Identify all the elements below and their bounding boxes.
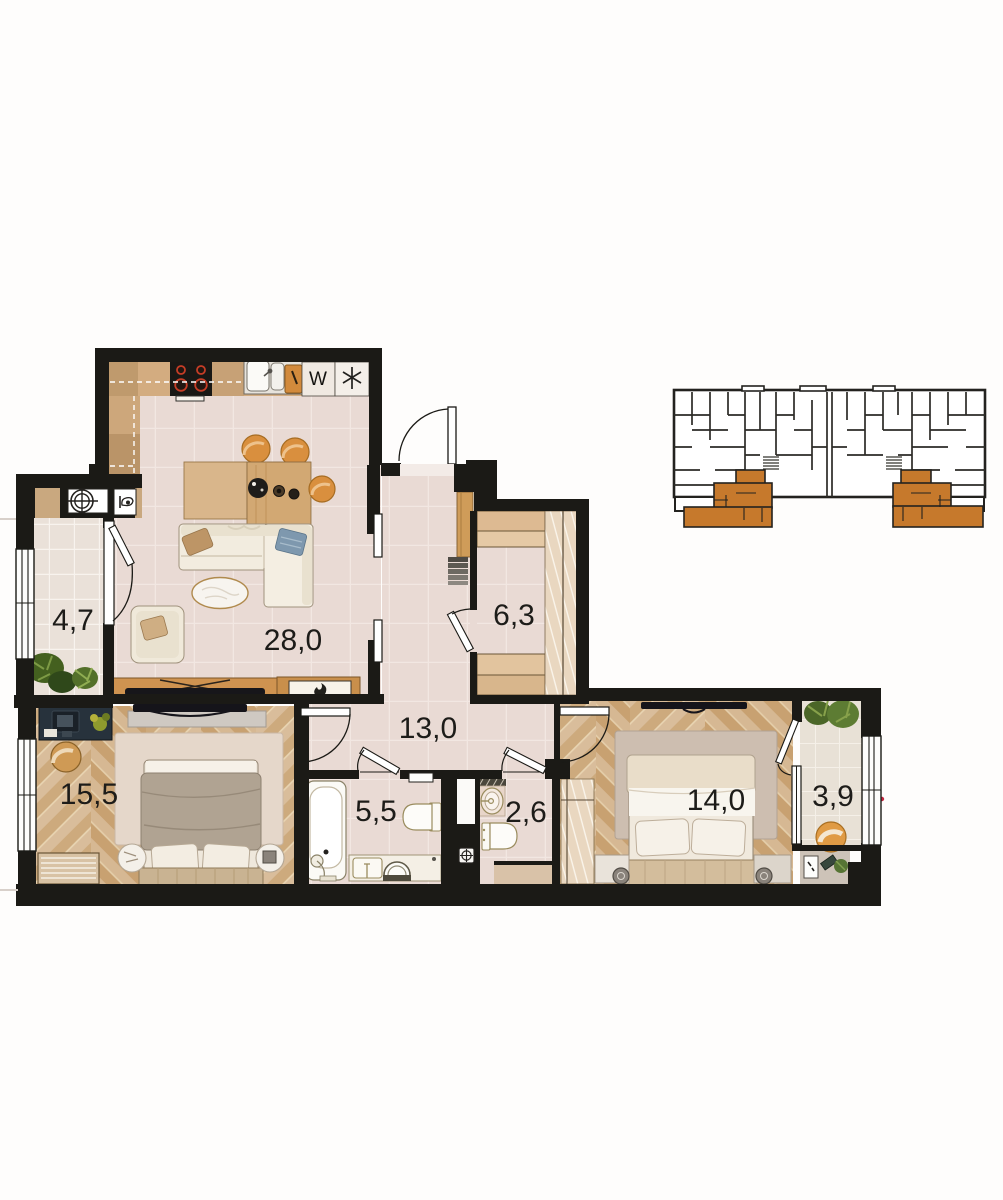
svg-text:W: W <box>309 369 327 390</box>
svg-text:28,0: 28,0 <box>264 624 322 657</box>
svg-text:5,5: 5,5 <box>355 795 397 828</box>
svg-text:3,9: 3,9 <box>812 780 854 813</box>
svg-text:4,7: 4,7 <box>52 604 94 637</box>
svg-text:2,6: 2,6 <box>505 796 547 829</box>
svg-text:13,0: 13,0 <box>399 712 457 745</box>
svg-text:15,5: 15,5 <box>60 778 118 811</box>
svg-text:14,0: 14,0 <box>687 784 745 817</box>
svg-text:6,3: 6,3 <box>493 599 535 632</box>
